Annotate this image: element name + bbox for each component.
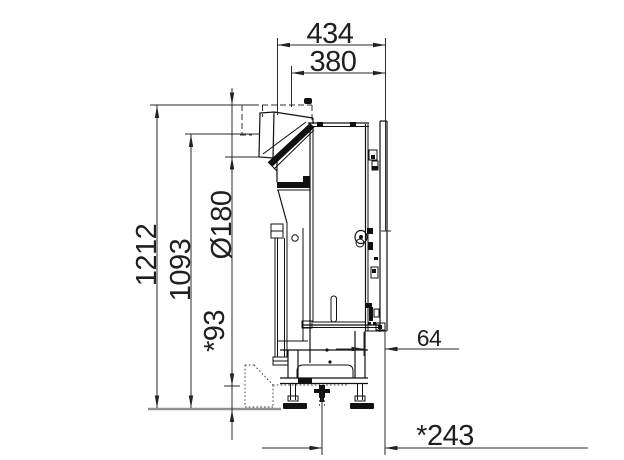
front-bolt: [292, 235, 298, 241]
right-foot: [350, 403, 374, 409]
frame-hatch: [298, 378, 312, 384]
left-foot: [283, 403, 307, 409]
dim-243: *243: [416, 420, 474, 452]
lid-hinge: [304, 98, 312, 104]
dim-93: *93: [199, 310, 231, 352]
door-slot: [331, 296, 337, 322]
dim-380: 380: [310, 46, 357, 78]
base-tray: [297, 365, 353, 378]
front-upper-section: [277, 158, 310, 223]
undercarriage: [280, 331, 374, 409]
dim-1212: 1212: [131, 224, 163, 287]
tilted-hopper: [259, 112, 315, 171]
front-shelf: [277, 182, 310, 188]
technical-drawing-page: 434 380 1212 1093 Ø180 *93 64 *243: [0, 0, 624, 460]
machine-side-view-drawing: 434 380 1212 1093 Ø180 *93 64 *243: [0, 0, 624, 460]
dim-64: 64: [417, 325, 442, 351]
front-rail: [271, 223, 298, 365]
dim-1093: 1093: [165, 239, 197, 302]
dim-diameter-180: Ø180: [206, 191, 238, 260]
dimension-labels: 434 380 1212 1093 Ø180 *93 64 *243: [131, 18, 474, 452]
